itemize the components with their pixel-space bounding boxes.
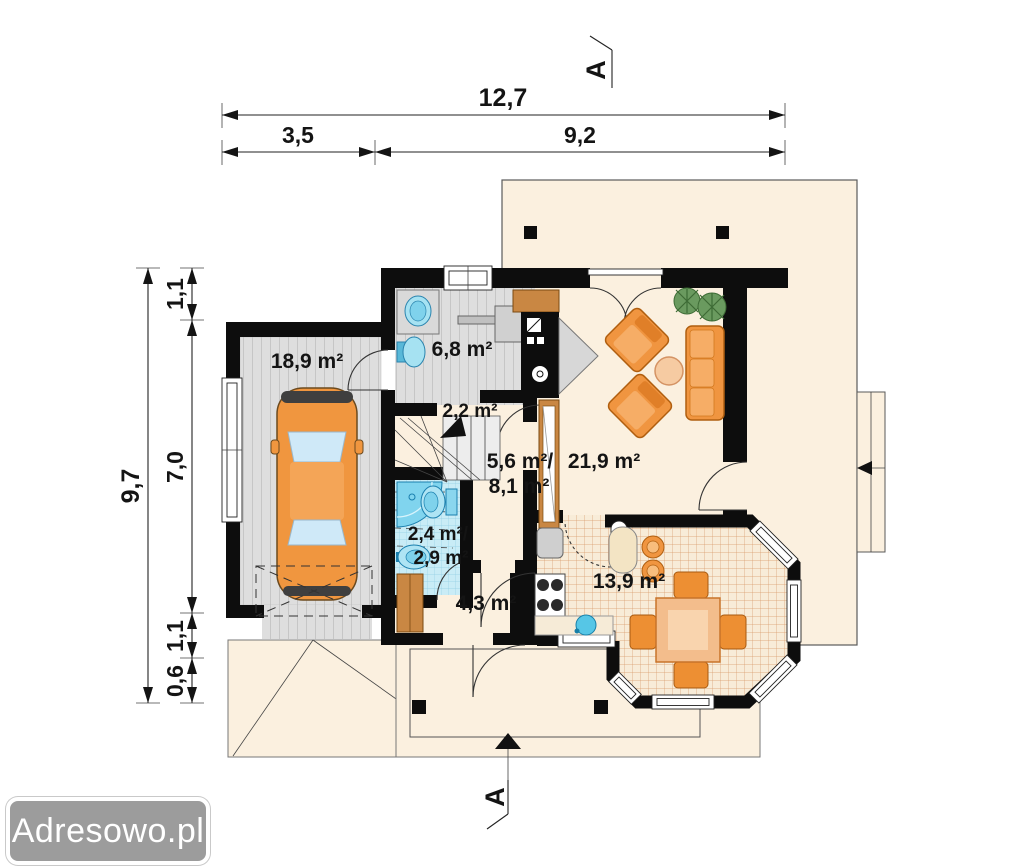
kitchen-counter xyxy=(535,616,613,635)
dim-depth-bottom: 0,6 xyxy=(162,665,188,697)
car-mirror xyxy=(271,440,279,454)
car-hood xyxy=(281,391,353,403)
watermark-badge[interactable]: Adresowo.pl xyxy=(6,797,210,865)
dimension-lines-left: 9,7 1,1 7,0 1,1 0,6 xyxy=(117,268,204,703)
label-vestibule: 4,3 m² xyxy=(456,592,517,615)
car xyxy=(271,388,363,600)
label-bath-2: 2,9 m² xyxy=(414,548,469,569)
wardrobe xyxy=(397,574,423,632)
plant xyxy=(698,293,726,321)
label-garage: 18,9 m² xyxy=(271,350,343,373)
section-marker-top: A xyxy=(581,36,612,88)
section-letter-top: A xyxy=(581,60,611,80)
utility-window xyxy=(444,266,492,290)
porch-column xyxy=(594,700,608,714)
label-kitchen: 13,9 m² xyxy=(593,570,665,593)
watermark-link[interactable]: Adresowo.pl xyxy=(12,812,205,851)
plant xyxy=(674,288,700,314)
floor-plan-page: 18,9 m² 6,8 m² 2,2 m² 5,6 m²/ 8,1 m² 2,4… xyxy=(0,0,1024,867)
label-hall-1: 5,6 m²/ xyxy=(487,450,554,473)
stove xyxy=(535,574,565,618)
utility-wc xyxy=(403,337,425,367)
terrace-column xyxy=(524,226,537,239)
dining-chair xyxy=(674,572,708,598)
dimension-lines-top: 12,7 3,5 9,2 xyxy=(222,84,785,165)
dim-depth-top: 1,1 xyxy=(162,278,188,310)
section-marker-bottom: A xyxy=(480,780,510,829)
section-letter-bottom: A xyxy=(480,787,510,807)
bar-counter xyxy=(609,527,637,573)
terrace-steps xyxy=(857,392,885,552)
dining-chair xyxy=(720,615,746,649)
terrace-column xyxy=(716,226,729,239)
sofa xyxy=(686,326,724,420)
cabinet xyxy=(513,290,559,312)
fridge xyxy=(537,528,563,558)
toilet xyxy=(421,486,457,518)
coffee-table xyxy=(655,357,683,385)
car-trunk xyxy=(283,586,351,596)
label-utility: 6,8 m² xyxy=(432,338,493,361)
dim-width-main: 9,2 xyxy=(564,122,596,148)
dining-chair xyxy=(674,662,708,688)
dim-depth-mid: 7,0 xyxy=(162,451,188,483)
dim-depth-lower: 1,1 xyxy=(162,620,188,652)
car-windshield xyxy=(288,432,346,462)
garage-window xyxy=(222,378,242,522)
garage-apron xyxy=(262,605,372,639)
car-mirror xyxy=(355,440,363,454)
dim-total-depth: 9,7 xyxy=(117,469,145,504)
boiler-pipe xyxy=(458,316,496,324)
car-roof xyxy=(290,462,344,520)
label-stairs: 2,2 m² xyxy=(443,401,498,422)
chimney xyxy=(521,312,559,398)
floor-plan-drawing: 18,9 m² 6,8 m² 2,2 m² 5,6 m²/ 8,1 m² 2,4… xyxy=(0,0,1024,867)
dining-chair xyxy=(630,615,656,649)
porch-column xyxy=(412,700,426,714)
dim-total-width: 12,7 xyxy=(479,84,528,112)
dim-width-garage: 3,5 xyxy=(282,122,314,148)
car-rear-window xyxy=(288,520,346,545)
label-living: 21,9 m² xyxy=(568,450,640,473)
label-bath-1: 2,4 m²/ xyxy=(408,524,469,545)
label-hall-2: 8,1 m² xyxy=(489,475,550,498)
